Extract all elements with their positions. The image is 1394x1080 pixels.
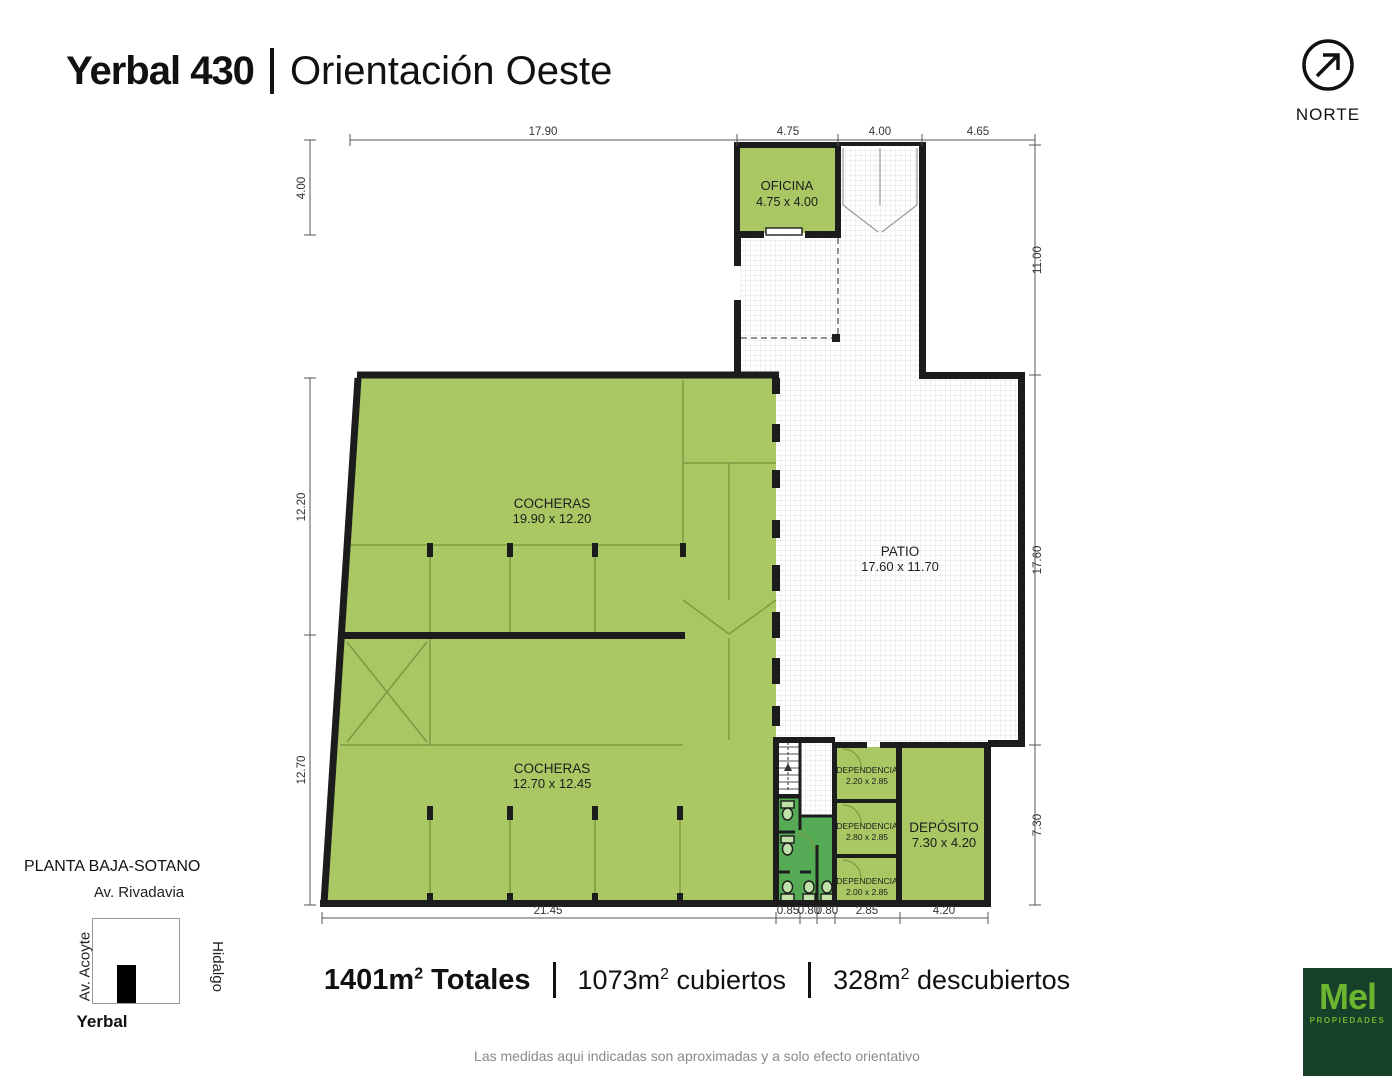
mel-propiedades-logo: Mel PROPIEDADES — [1303, 968, 1392, 1076]
label-patio-size: 17.60 x 11.70 — [861, 559, 939, 574]
label-cocheras-top-size: 19.90 x 12.20 — [513, 511, 592, 526]
dim-right-0: 11.00 — [1032, 246, 1044, 274]
label-cocheras-bottom: COCHERAS — [514, 761, 591, 776]
dim-top-1: 4.75 — [777, 126, 799, 138]
label-dependencia-3: DEPENDENCIA — [836, 876, 898, 886]
logo-tagline: PROPIEDADES — [1310, 1016, 1386, 1025]
label-oficina-size: 4.75 x 4.00 — [756, 195, 818, 209]
floorplan-page: Yerbal 430 Orientación Oeste NORTE — [0, 0, 1394, 1080]
dim-top-2: 4.00 — [869, 126, 891, 138]
label-dependencia-2: DEPENDENCIA — [836, 821, 898, 831]
hatched-areas — [740, 148, 1019, 815]
dim-bottom-0: 21.45 — [534, 905, 563, 917]
label-deposito-size: 7.30 x 4.20 — [912, 835, 976, 850]
uncovered-area-label: descubiertos — [910, 965, 1071, 995]
uncovered-area: 328m2 descubiertos — [833, 965, 1070, 996]
dim-left-0: 4.00 — [296, 177, 308, 199]
label-oficina: OFICINA — [761, 178, 814, 193]
dim-left-1: 12.20 — [296, 493, 308, 522]
totals-divider-2 — [808, 962, 811, 998]
label-deposito: DEPÓSITO — [909, 820, 979, 835]
logo-name: Mel — [1319, 982, 1376, 1012]
total-area-value: 1401m — [324, 964, 414, 996]
total-area: 1401m2 Totales — [324, 964, 531, 997]
dim-bottom-1: 0.85 — [777, 905, 799, 917]
dim-top-0: 17.90 — [529, 126, 558, 138]
total-area-label: Totales — [423, 964, 530, 996]
covered-area: 1073m2 cubiertos — [578, 965, 787, 996]
covered-area-value: 1073m — [578, 965, 661, 995]
label-patio: PATIO — [881, 544, 920, 559]
label-dependencia-3-size: 2.00 x 2.85 — [846, 887, 888, 897]
label-dependencia-1-size: 2.20 x 2.85 — [846, 776, 888, 786]
covered-area-label: cubiertos — [669, 965, 786, 995]
area-totals: 1401m2 Totales 1073m2 cubiertos 328m2 de… — [0, 962, 1394, 998]
dim-right-1: 17.60 — [1032, 546, 1044, 575]
label-cocheras-bottom-size: 12.70 x 12.45 — [513, 776, 592, 791]
dim-right-2: 7.30 — [1032, 814, 1044, 836]
plan-level-title: PLANTA BAJA-SOTANO — [24, 858, 254, 876]
stair — [776, 740, 800, 795]
sanitary-void-hatch — [800, 742, 835, 815]
dim-bottom-5: 4.20 — [933, 905, 955, 917]
label-cocheras-top: COCHERAS — [514, 496, 591, 511]
uncovered-area-value: 328m — [833, 965, 901, 995]
dim-bottom-3: 0.80 — [816, 905, 838, 917]
label-dependencia-2-size: 2.80 x 2.85 — [846, 832, 888, 842]
label-dependencia-1: DEPENDENCIA — [836, 765, 898, 775]
location-legend: PLANTA BAJA-SOTANO Av. Rivadavia Av. Aco… — [24, 858, 254, 1044]
dim-top-3: 4.65 — [967, 126, 989, 138]
covered-area-sup: 2 — [660, 966, 669, 983]
uncovered-area-sup: 2 — [901, 966, 910, 983]
street-yerbal: Yerbal — [24, 1012, 180, 1032]
total-area-sup: 2 — [414, 965, 423, 982]
dim-bottom-4: 2.85 — [856, 905, 878, 917]
disclaimer-text: Las medidas aqui indicadas son aproximad… — [0, 1048, 1394, 1064]
room-cocheras — [324, 378, 776, 903]
dim-left-2: 12.70 — [296, 756, 308, 785]
street-rivadavia: Av. Rivadavia — [24, 884, 254, 901]
totals-divider-1 — [553, 962, 556, 998]
projection-node — [832, 334, 840, 342]
